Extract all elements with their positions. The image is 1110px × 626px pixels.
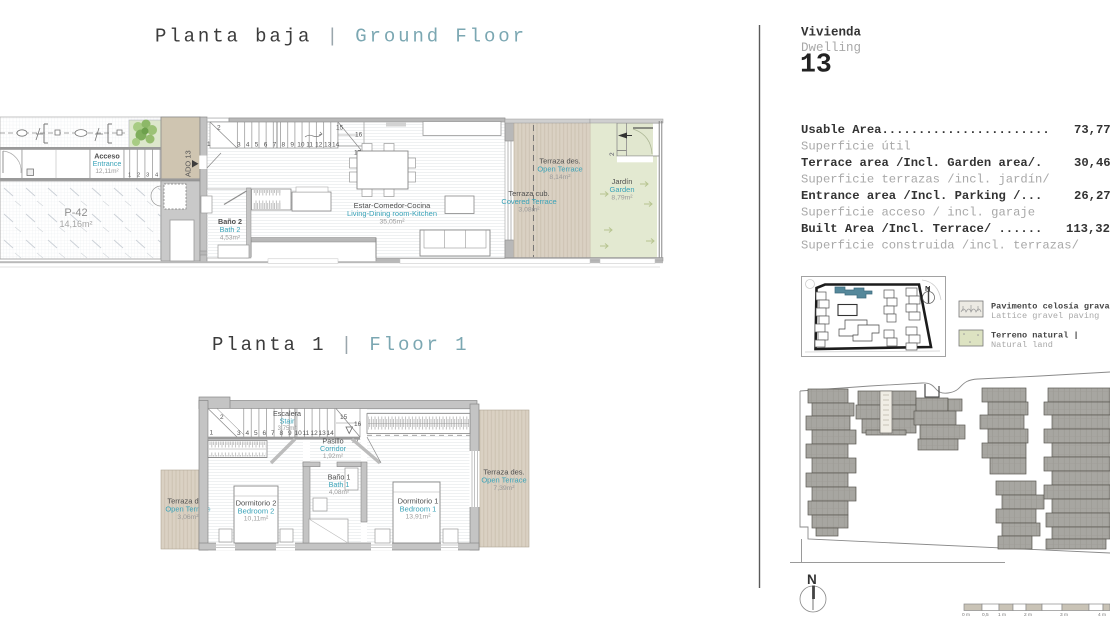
svg-text:Living-Dining room-Kitchen: Living-Dining room-Kitchen xyxy=(347,209,437,218)
svg-text:Bath 1: Bath 1 xyxy=(329,480,350,489)
svg-text:Natural land: Natural land xyxy=(991,340,1053,350)
svg-text:16: 16 xyxy=(355,132,363,139)
svg-text:8: 8 xyxy=(282,142,286,149)
svg-text:Terreno natural |: Terreno natural | xyxy=(991,331,1079,341)
svg-text:6: 6 xyxy=(263,430,267,437)
svg-text:2 m: 2 m xyxy=(1024,612,1032,618)
svg-text:Bedroom 2: Bedroom 2 xyxy=(238,507,275,516)
svg-text:15: 15 xyxy=(336,125,344,132)
svg-text:Garden: Garden xyxy=(609,185,634,194)
svg-text:Bath 2: Bath 2 xyxy=(220,225,241,234)
svg-text:4 m: 4 m xyxy=(1098,612,1106,618)
svg-text:1: 1 xyxy=(210,430,214,437)
svg-text:5: 5 xyxy=(254,430,258,437)
svg-text:11: 11 xyxy=(306,142,313,149)
svg-text:Superficie construida /incl. t: Superficie construida /incl. terrazas/ xyxy=(801,239,1079,253)
svg-text:4: 4 xyxy=(246,142,250,149)
svg-text:5: 5 xyxy=(255,142,259,149)
svg-text:3: 3 xyxy=(237,142,241,149)
svg-text:3: 3 xyxy=(146,173,149,179)
svg-text:73,77m: 73,77m xyxy=(1074,123,1110,137)
svg-text:8,79m²: 8,79m² xyxy=(611,195,633,202)
svg-text:13: 13 xyxy=(324,142,332,149)
svg-text:3 m: 3 m xyxy=(1060,612,1068,618)
svg-text:Superficie útil: Superficie útil xyxy=(801,140,911,154)
svg-text:4,53m²: 4,53m² xyxy=(220,235,241,242)
svg-text:2: 2 xyxy=(609,152,616,156)
svg-text:13: 13 xyxy=(800,50,832,80)
svg-text:12: 12 xyxy=(315,142,323,149)
svg-text:2: 2 xyxy=(220,414,224,421)
svg-text:Superficie terrazas /incl. jar: Superficie terrazas /incl. jardín/ xyxy=(801,173,1050,187)
svg-text:3,75m²: 3,75m² xyxy=(278,426,297,432)
svg-text:Lattice gravel paving: Lattice gravel paving xyxy=(991,311,1099,321)
svg-text:1,92m²: 1,92m² xyxy=(323,453,344,460)
svg-text:7: 7 xyxy=(273,142,277,149)
svg-text:0 m: 0 m xyxy=(962,612,970,618)
svg-text:7,39m²: 7,39m² xyxy=(493,485,515,492)
svg-text:1: 1 xyxy=(128,173,131,179)
svg-text:11: 11 xyxy=(303,430,310,437)
svg-text:N: N xyxy=(807,572,817,587)
svg-text:15: 15 xyxy=(340,414,348,421)
svg-text:Terrace area /Incl. Garden are: Terrace area /Incl. Garden area/. xyxy=(801,156,1042,170)
svg-text:ADO 13: ADO 13 xyxy=(184,150,193,177)
svg-text:3,08m²: 3,08m² xyxy=(518,207,540,214)
svg-text:1: 1 xyxy=(207,141,211,148)
svg-text:12: 12 xyxy=(311,430,319,437)
svg-text:10: 10 xyxy=(297,142,305,149)
svg-text:Stair: Stair xyxy=(280,417,295,426)
svg-text:2: 2 xyxy=(137,173,140,179)
svg-text:0,5: 0,5 xyxy=(982,612,989,618)
svg-text:Entrance: Entrance xyxy=(93,159,122,168)
svg-text:3,06m²: 3,06m² xyxy=(177,514,199,521)
svg-text:4: 4 xyxy=(246,430,250,437)
svg-text:35,05m²: 35,05m² xyxy=(380,219,406,226)
svg-text:7: 7 xyxy=(271,430,275,437)
svg-text:10,11m²: 10,11m² xyxy=(244,516,269,523)
svg-text:4,08m²: 4,08m² xyxy=(329,489,350,496)
svg-text:Covered Terrace: Covered Terrace xyxy=(501,197,556,206)
svg-text:Open Terrace: Open Terrace xyxy=(537,165,582,174)
svg-text:16: 16 xyxy=(354,421,362,428)
svg-text:Planta 1 | Floor 1: Planta 1 | Floor 1 xyxy=(212,334,469,356)
svg-text:1 m: 1 m xyxy=(998,612,1006,618)
svg-text:26,27m: 26,27m xyxy=(1074,189,1110,203)
svg-text:Usable Area...................: Usable Area....................... xyxy=(801,123,1050,137)
svg-text:Superficie acceso / incl. gara: Superficie acceso / incl. garaje xyxy=(801,206,1035,220)
svg-text:Vivienda: Vivienda xyxy=(801,26,862,40)
svg-text:12,11m²: 12,11m² xyxy=(95,168,119,175)
svg-text:30,46m: 30,46m xyxy=(1074,156,1110,170)
svg-text:Built Area /Incl. Terrace/ ...: Built Area /Incl. Terrace/ ...... xyxy=(801,222,1042,236)
svg-text:Planta baja | Ground Floor: Planta baja | Ground Floor xyxy=(155,26,527,48)
svg-text:6: 6 xyxy=(264,142,268,149)
svg-text:3: 3 xyxy=(237,430,241,437)
svg-text:8,14m²: 8,14m² xyxy=(549,174,571,181)
svg-text:113,32m: 113,32m xyxy=(1066,222,1110,236)
svg-text:14: 14 xyxy=(332,142,340,149)
svg-text:P-42: P-42 xyxy=(64,207,87,219)
svg-text:Bedroom 1: Bedroom 1 xyxy=(400,505,437,514)
svg-text:Open Terrace: Open Terrace xyxy=(481,476,526,485)
svg-text:13,91m²: 13,91m² xyxy=(406,514,432,521)
svg-text:9: 9 xyxy=(290,142,294,149)
svg-text:14,16m²: 14,16m² xyxy=(59,219,92,229)
svg-text:Entrance area /Incl. Parking /: Entrance area /Incl. Parking /... xyxy=(801,189,1042,203)
svg-text:2: 2 xyxy=(217,125,221,132)
svg-text:Pavimento celosía grava: Pavimento celosía grava xyxy=(991,302,1110,312)
svg-text:Corridor: Corridor xyxy=(320,444,347,453)
